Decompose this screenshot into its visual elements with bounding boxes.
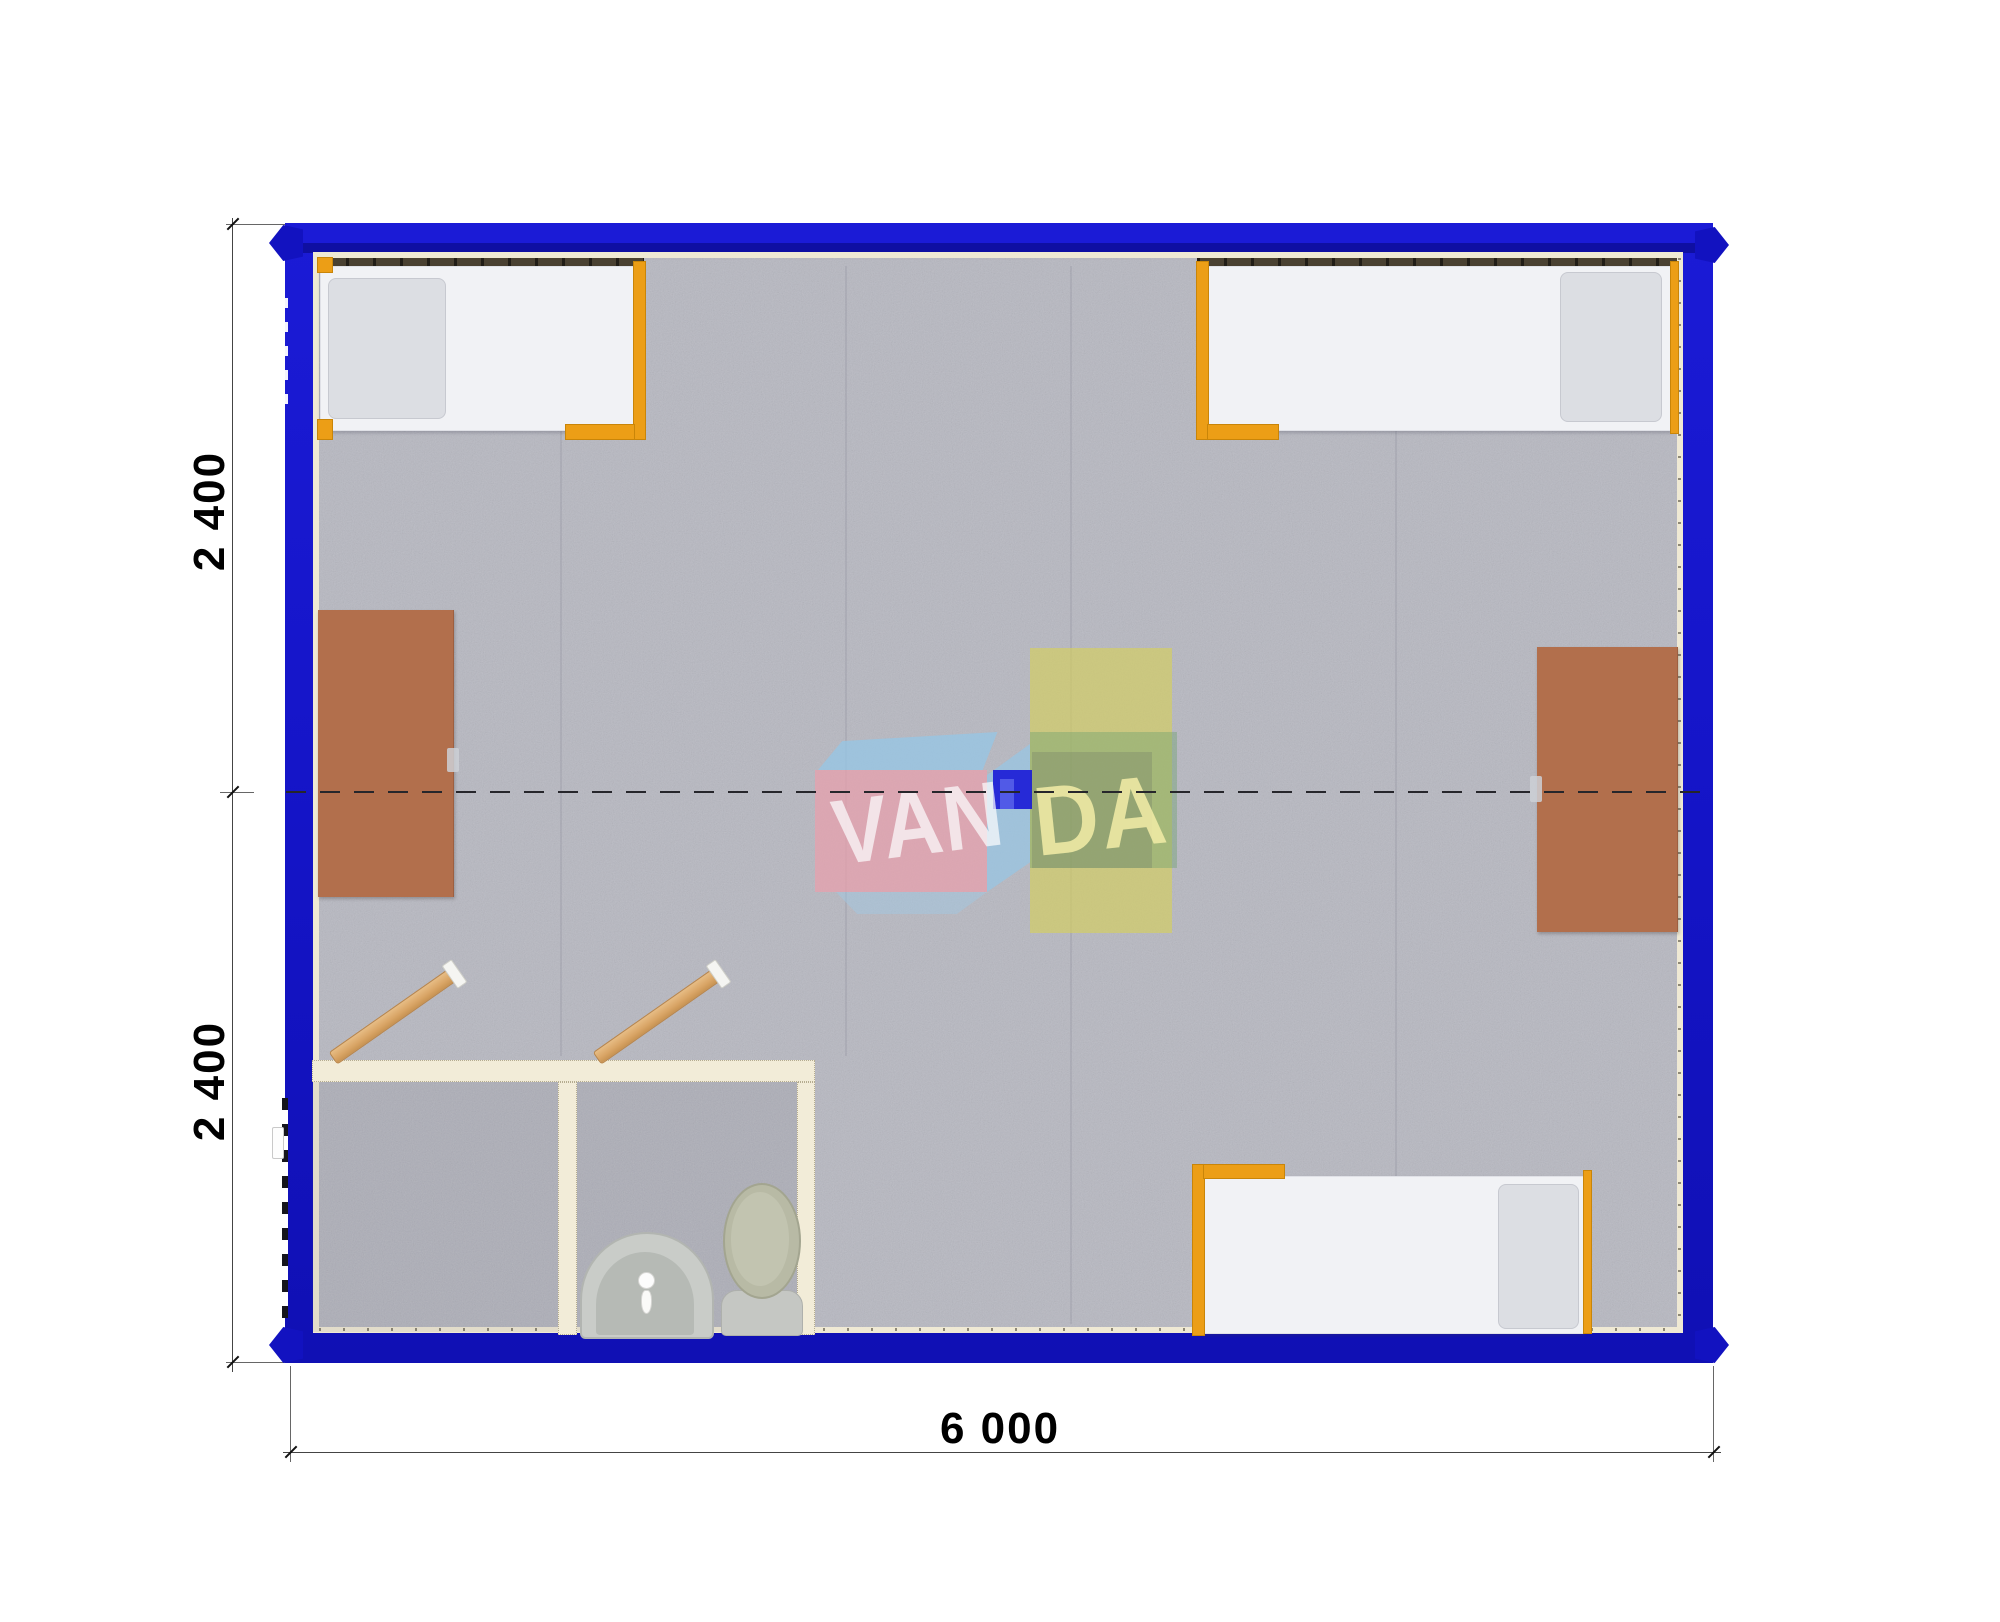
dimension-label-width: 6 000: [860, 1404, 1140, 1454]
extension-line-mid-left: [220, 792, 254, 793]
sink-tap-body: [641, 1290, 652, 1314]
bathroom-wall-middle: [558, 1082, 577, 1335]
floor-plan-canvas: 2 400 2 400 6 000: [0, 0, 2000, 1622]
corner-fitting-bottom-left: [269, 1327, 303, 1363]
bed-top-right-wall-rail: [1670, 261, 1679, 434]
bed-bottom-right-wall-rail: [1583, 1170, 1592, 1334]
corner-fitting-bottom-right: [1695, 1327, 1729, 1363]
extension-line-bottom-corner-left: [290, 1366, 291, 1462]
dimension-label-height-top: 2 400: [185, 401, 235, 621]
corner-fitting-top-left: [269, 225, 303, 261]
toilet-lid-inner: [731, 1192, 789, 1286]
bed-bottom-right-pillow: [1498, 1184, 1579, 1329]
bed-top-right-pillow: [1560, 272, 1662, 422]
bed-top-left-corner-tab: [317, 257, 333, 273]
floor-seam: [845, 266, 847, 1056]
table-left-hinge: [447, 748, 459, 772]
corner-fitting-top-right: [1695, 227, 1729, 263]
watermark-text-da: DA: [1028, 752, 1173, 878]
watermark-text-van: VAN: [827, 762, 1010, 887]
table-left: [318, 610, 454, 897]
bed-top-left-pillow: [328, 278, 446, 419]
bed-top-left-corner-tab: [317, 419, 333, 440]
extension-line-bottom-corner-right: [1713, 1366, 1714, 1462]
left-wall-window-top: [282, 298, 288, 418]
table-right-hinge: [1530, 776, 1542, 802]
bed-bottom-right-foot-frame: [1192, 1164, 1205, 1336]
sink-tap: [638, 1272, 655, 1289]
bed-top-left-foot-frame: [633, 261, 646, 440]
table-right: [1537, 647, 1678, 932]
left-dimension-line: [232, 218, 233, 1372]
bed-top-left-foot-stub: [565, 424, 635, 440]
bed-top-right-foot-frame: [1196, 261, 1209, 440]
bathroom-wall-top: [312, 1060, 815, 1082]
exterior-door-handle: [272, 1127, 284, 1159]
bed-top-right-foot-stub: [1207, 424, 1279, 440]
bed-bottom-right-foot-stub: [1203, 1164, 1285, 1179]
dimension-label-height-bottom: 2 400: [185, 971, 235, 1191]
bathroom-floor-left: [312, 1082, 558, 1332]
axis-centerline: [286, 791, 1714, 793]
extension-line-top-left: [226, 224, 291, 225]
